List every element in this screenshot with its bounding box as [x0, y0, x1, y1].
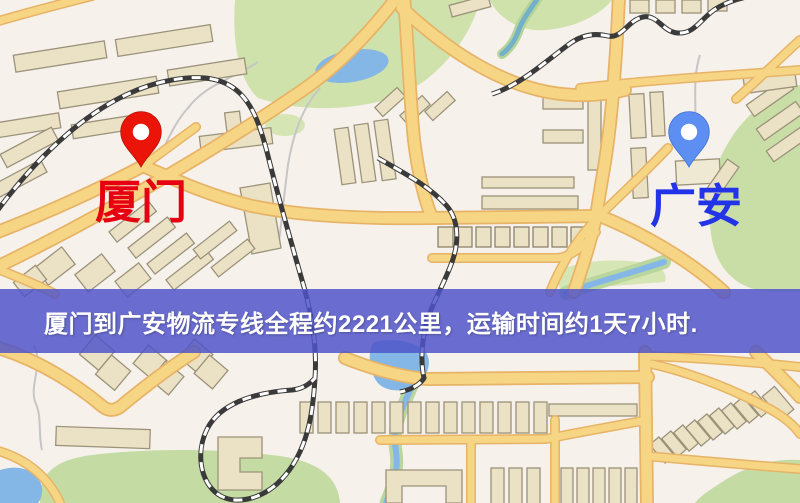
route-info-text: 厦门到广安物流专线全程约2221公里，运输时间约1天7小时. — [44, 304, 698, 339]
map-svg: 厦门 广安 — [0, 0, 800, 503]
destination-label: 广安 — [650, 180, 742, 232]
route-info-banner: 厦门到广安物流专线全程约2221公里，运输时间约1天7小时. — [0, 289, 800, 353]
map-image: 厦门 广安 厦门到广安物流专线全程约2221公里，运输时间约1天7小时. — [0, 0, 800, 503]
origin-label: 厦门 — [95, 176, 187, 228]
